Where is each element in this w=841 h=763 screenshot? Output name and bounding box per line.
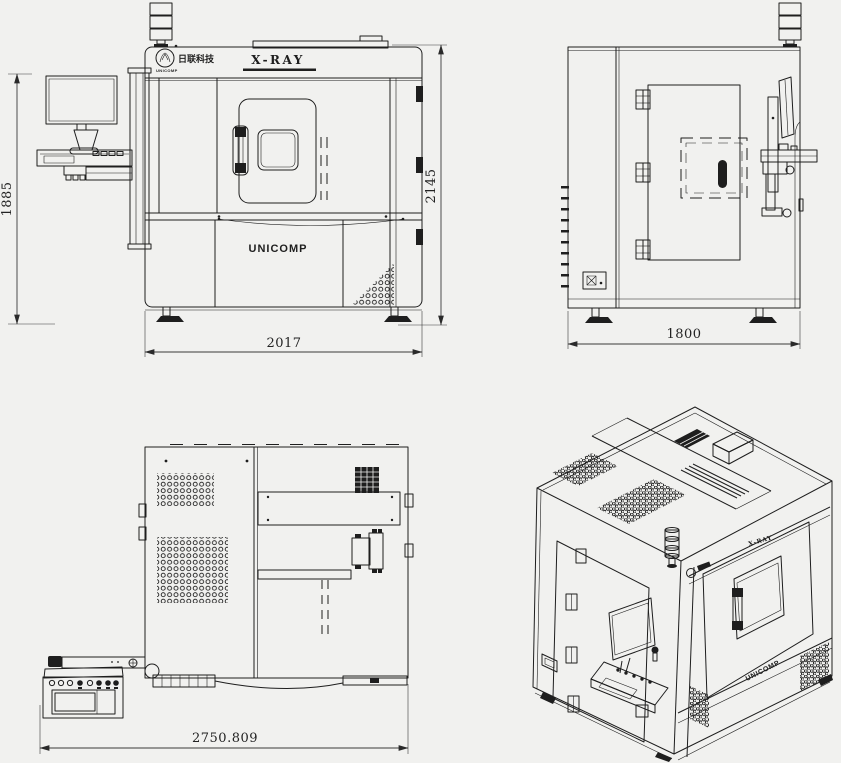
isometric-view: X-RAY UNICOMP [0, 0, 833, 762]
iso-left-door [553, 541, 649, 742]
dim-1800-text: 1800 [666, 327, 701, 342]
signal-tower-icon-side [779, 3, 801, 47]
switch-plate [583, 272, 606, 289]
door-handle [233, 126, 248, 175]
unicomp-logo: 日联科技 UNICOMP [156, 45, 215, 73]
side-view: 1800 [561, 3, 817, 349]
rear-cabinet [139, 445, 413, 689]
side-cabinet [561, 47, 817, 323]
front-door [233, 99, 316, 203]
rear-view: 2750.809 [40, 445, 413, 755]
iso-side-vent [542, 654, 557, 672]
front-cabinet [145, 36, 423, 322]
dim-1885: 1885 [0, 74, 55, 324]
dim-2017: 2017 [145, 311, 422, 357]
monitor-edge [761, 77, 817, 217]
engineering-drawing: 日联科技 UNICOMP X-RAY UNICOMP [0, 0, 841, 763]
dim-2145-text: 2145 [424, 168, 439, 203]
xray-underline [243, 69, 316, 72]
iso-top-vent-left [552, 453, 618, 486]
brand-label-front: UNICOMP [249, 243, 308, 255]
iso-signal-tower-icon [665, 528, 679, 569]
drawing-canvas: 日联科技 UNICOMP X-RAY UNICOMP [0, 0, 841, 763]
iso-top-face [0, 0, 832, 561]
side-feet [585, 308, 777, 323]
dim-2017-text: 2017 [266, 336, 301, 351]
dim-1885-text: 1885 [0, 181, 15, 216]
iso-right-face: X-RAY UNICOMP [678, 507, 832, 728]
hidden-window [681, 138, 747, 198]
iso-top-stripes [681, 464, 749, 498]
logo-text: 日联科技 [178, 53, 215, 65]
vent-grid-lower [157, 537, 228, 603]
vent-holes-triangle [350, 261, 396, 307]
fan-filter [355, 467, 379, 493]
control-pendant [43, 656, 145, 718]
vent-grid-upper [157, 473, 214, 506]
rail-bar [258, 570, 351, 579]
dim-1800: 1800 [568, 311, 800, 349]
signal-tower-icon [150, 3, 172, 47]
support-arm [86, 167, 132, 180]
iso-silhouette [533, 407, 832, 754]
bottom-skirt [145, 664, 407, 689]
motor-box [352, 529, 383, 573]
front-view: 日联科技 UNICOMP X-RAY UNICOMP [0, 3, 447, 357]
leveling-feet [156, 307, 412, 322]
access-panel [258, 492, 400, 525]
monitor-assembly [37, 68, 151, 249]
iso-vent-pillar [690, 686, 709, 728]
iso-top-vent-front [597, 479, 686, 524]
pendant-buttons [49, 680, 118, 689]
iso-top-box [713, 432, 753, 464]
logo-subtext: UNICOMP [156, 68, 178, 73]
door-window [258, 130, 298, 170]
monitor-icon [46, 76, 117, 154]
xray-label-front: X-RAY [251, 53, 305, 67]
iso-door-handle [732, 588, 743, 630]
dim-2750-text: 2750.809 [192, 731, 258, 746]
iso-control-tray [591, 647, 668, 718]
iso-left-face [537, 491, 668, 742]
